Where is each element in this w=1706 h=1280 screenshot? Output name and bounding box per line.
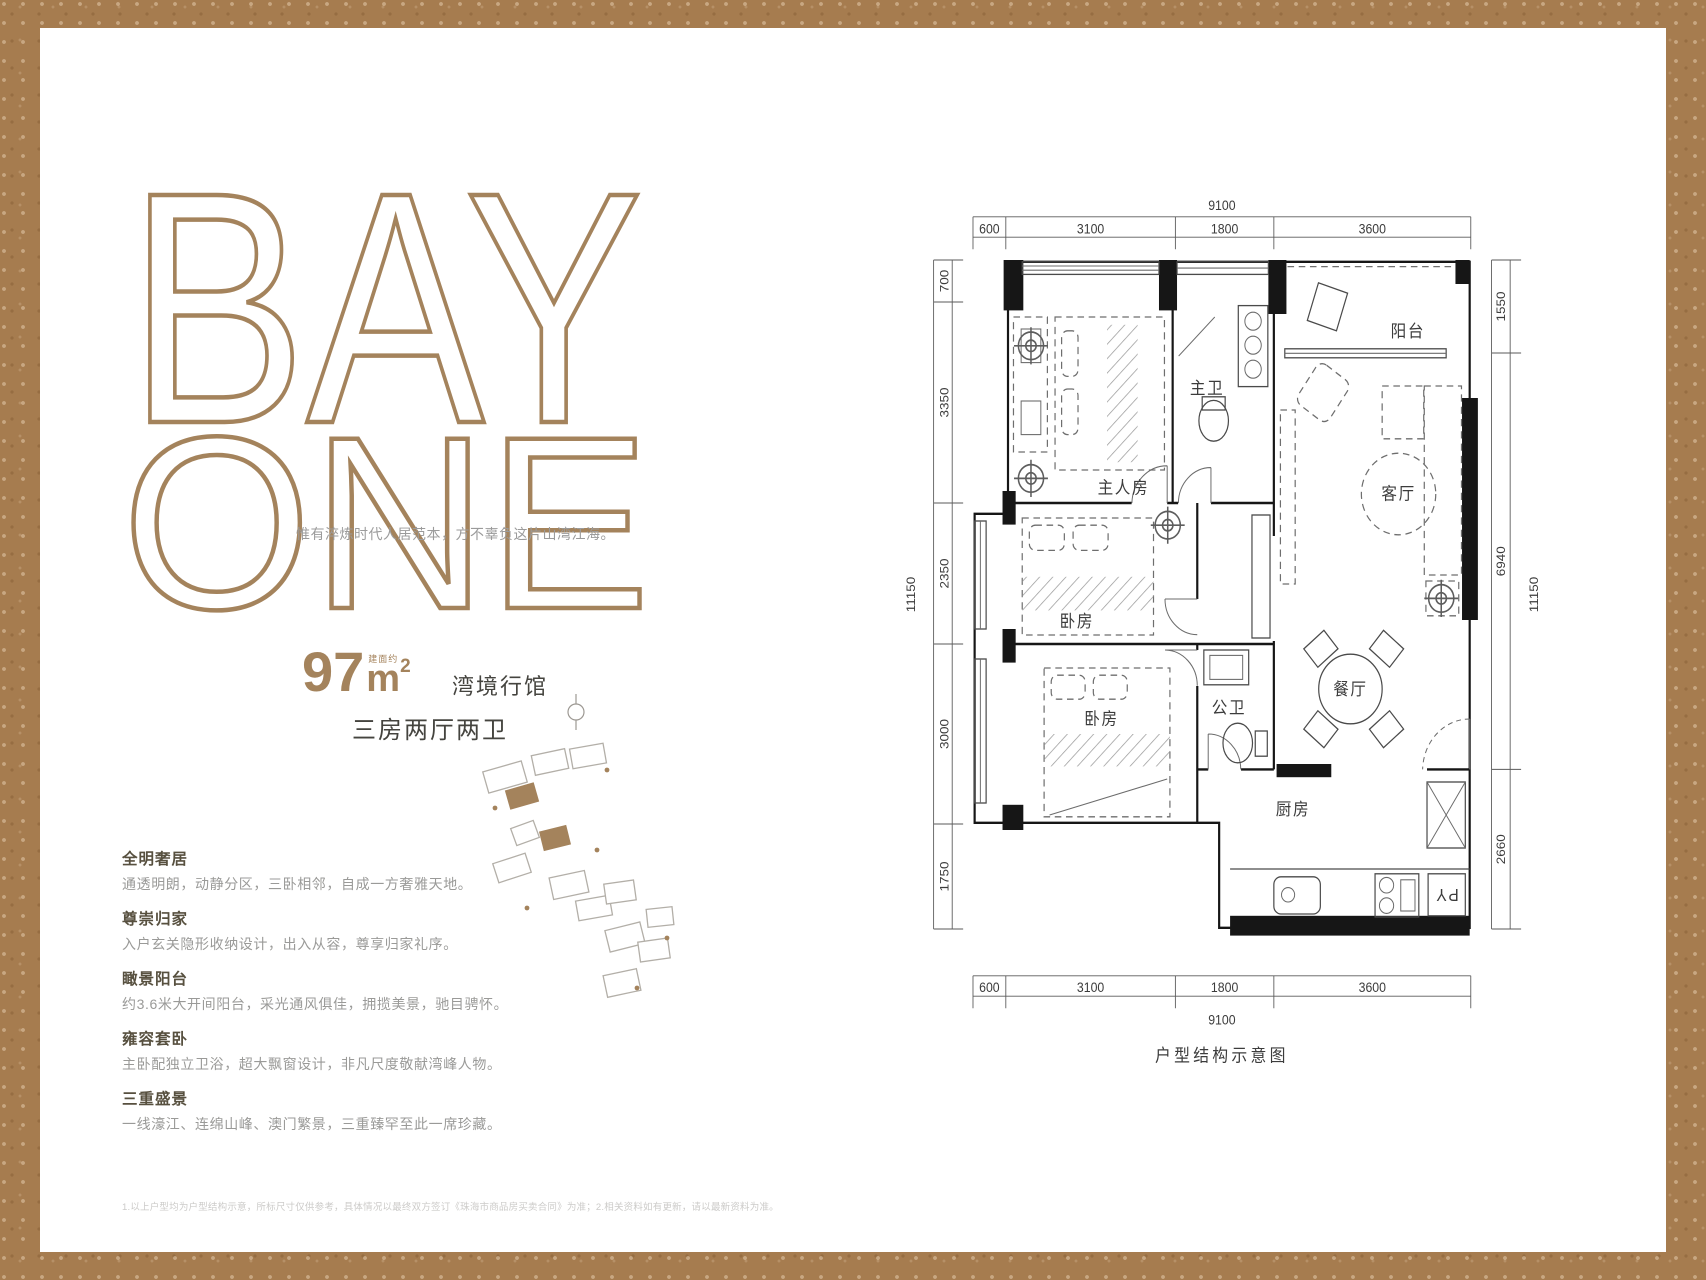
dim-chain-top: 9100 600 3100 1800 3600 xyxy=(973,198,1471,250)
area-unit-wrap: 建面约 m xyxy=(366,663,400,696)
feature-title: 三重盛景 xyxy=(122,1087,542,1109)
master-bedroom-furniture xyxy=(1013,317,1164,497)
room-label-bedroom2: 卧房 xyxy=(1084,710,1118,729)
dim-chain-bottom: 600 3100 1800 3600 9100 户型结构示意图 xyxy=(973,976,1471,1066)
area-superscript: 2 xyxy=(400,656,411,678)
feature-desc: 通透明朗，动静分区，三卧相邻，自成一方奢雅天地。 xyxy=(122,874,542,894)
feature-item: 全明奢居 通透明朗，动静分区，三卧相邻，自成一方奢雅天地。 xyxy=(122,847,542,894)
balcony-furniture xyxy=(1307,283,1347,331)
entry-storage xyxy=(1252,515,1270,638)
feature-title: 全明奢居 xyxy=(122,847,542,869)
floorplan: 主人房 主卫 阳台 客厅 卧房 卧房 公卫 餐厅 厨房 PY 9100 600 … xyxy=(880,164,1613,1094)
feature-desc: 主卧配独立卫浴，超大飘窗设计，非凡尺度敬献湾峰人物。 xyxy=(122,1054,542,1074)
feature-desc: 入户玄关隐形收纳设计，出入从容，尊享归家礼序。 xyxy=(122,934,542,954)
brand-tagline: 惟有淬炼时代人居范本，方不辜负这片山湾江海。 xyxy=(296,524,615,544)
feature-item: 三重盛景 一线濠江、连绵山峰、澳门繁景，三重臻罕至此一席珍藏。 xyxy=(122,1087,542,1134)
dim-right-1: 1550 xyxy=(1494,291,1508,321)
room-label-dining: 餐厅 xyxy=(1333,680,1367,699)
dim-right-2: 6940 xyxy=(1494,546,1508,576)
disclaimer-text: 1.以上户型均为户型结构示意，所标尺寸仅供参考，具体情况以最终双方签订《珠海市商… xyxy=(122,1199,779,1213)
floorplan-caption: 户型结构示意图 xyxy=(1155,1046,1289,1066)
room-label-master-bath: 主卫 xyxy=(1190,379,1224,398)
room-label-master: 主人房 xyxy=(1098,479,1150,498)
dim-top-3: 1800 xyxy=(1211,221,1238,237)
feature-title: 尊崇归家 xyxy=(122,907,542,929)
dim-top-total: 9100 xyxy=(1208,198,1235,214)
dim-left-1: 700 xyxy=(937,270,951,293)
dim-left-4: 3000 xyxy=(937,719,951,749)
room-label-bedroom1: 卧房 xyxy=(1060,613,1094,632)
dim-chain-left: 700 3350 2350 3000 1750 11150 xyxy=(904,260,964,929)
feature-item: 尊崇归家 入户玄关隐形收纳设计，出入从容，尊享归家礼序。 xyxy=(122,907,542,954)
brand-logo: BAY ONE xyxy=(118,172,658,622)
bedroom1-furniture xyxy=(1022,507,1184,635)
dim-top-1: 600 xyxy=(979,221,1000,237)
room-label-living: 客厅 xyxy=(1381,485,1415,504)
dim-right-3: 2660 xyxy=(1494,834,1508,864)
feature-title: 瞰景阳台 xyxy=(122,967,542,989)
area-number: 97 xyxy=(302,648,364,696)
dim-left-5: 1750 xyxy=(937,861,951,891)
unit-area: 97 建面约 m 2 xyxy=(302,648,411,696)
dim-chain-right: 1550 6940 2660 11150 xyxy=(1492,260,1541,929)
poster-page: { "brand": { "line1": "BAY", "line2": "O… xyxy=(0,0,1706,1280)
dim-right-total: 11150 xyxy=(1527,577,1541,613)
area-prefix: 建面约 xyxy=(368,652,398,665)
fridge-label: PY xyxy=(1435,885,1459,904)
dim-top-2: 3100 xyxy=(1077,221,1104,237)
feature-item: 雍容套卧 主卧配独立卫浴，超大飘窗设计，非凡尺度敬献湾峰人物。 xyxy=(122,1027,542,1074)
dim-bottom-total: 9100 xyxy=(1208,1012,1235,1028)
windows xyxy=(975,262,1453,803)
kitchen-fixtures xyxy=(1230,782,1470,917)
doors xyxy=(1132,466,1470,770)
feature-desc: 约3.6米大开间阳台，采光通风俱佳，拥揽美景，驰目骋怀。 xyxy=(122,994,542,1014)
dim-left-2: 3350 xyxy=(937,387,951,417)
room-label-bath: 公卫 xyxy=(1212,699,1246,718)
dim-left-total: 11150 xyxy=(904,577,918,613)
feature-list: 全明奢居 通透明朗，动静分区，三卧相邻，自成一方奢雅天地。 尊崇归家 入户玄关隐… xyxy=(122,847,542,1147)
room-label-kitchen: 厨房 xyxy=(1276,800,1310,819)
dim-bottom-1: 600 xyxy=(979,979,1000,995)
dim-left-3: 2350 xyxy=(937,558,951,588)
feature-item: 瞰景阳台 约3.6米大开间阳台，采光通风俱佳，拥揽美景，驰目骋怀。 xyxy=(122,967,542,1014)
master-bath-fixtures xyxy=(1179,306,1268,442)
feature-title: 雍容套卧 xyxy=(122,1027,542,1049)
dim-bottom-2: 3100 xyxy=(1077,979,1104,995)
feature-desc: 一线濠江、连绵山峰、澳门繁景，三重臻罕至此一席珍藏。 xyxy=(122,1114,542,1134)
room-label-balcony: 阳台 xyxy=(1391,322,1425,341)
dim-top-4: 3600 xyxy=(1359,221,1386,237)
dim-bottom-4: 3600 xyxy=(1359,979,1386,995)
living-furniture xyxy=(1280,360,1461,617)
compass-icon xyxy=(568,694,584,730)
bedroom2-furniture xyxy=(1044,668,1170,817)
brand-line2: ONE xyxy=(122,386,650,622)
dim-bottom-3: 1800 xyxy=(1211,979,1238,995)
